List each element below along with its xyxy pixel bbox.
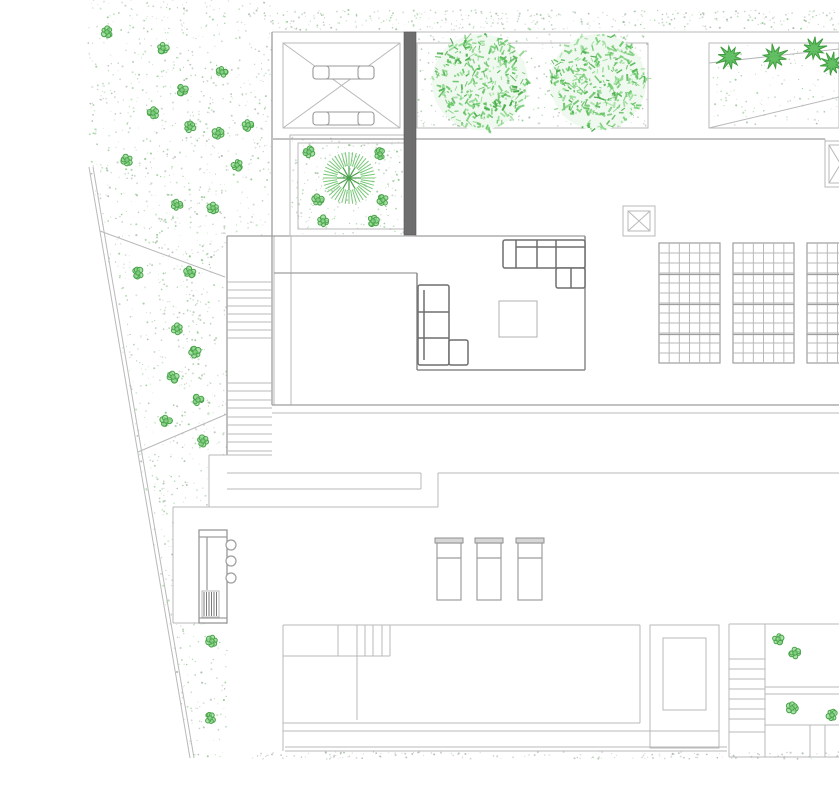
car-cap-tl <box>313 66 329 79</box>
skylight-box <box>825 141 839 187</box>
bush <box>375 148 385 160</box>
bar-stool-3 <box>226 573 236 583</box>
car-cap-tr <box>358 66 374 79</box>
bush <box>318 215 329 227</box>
palm-tree <box>323 152 375 204</box>
bush <box>160 415 172 426</box>
spa-inner <box>663 638 706 710</box>
architectural-site-plan <box>0 0 839 800</box>
bush <box>242 120 254 132</box>
bush <box>193 394 204 405</box>
bush <box>206 635 218 647</box>
stipple-ground-dotted-line <box>252 751 839 760</box>
patio-stair <box>729 659 765 732</box>
bush <box>368 215 379 226</box>
boundary-line-2 <box>93 167 194 758</box>
bush <box>212 127 224 139</box>
bush <box>184 266 196 278</box>
solar-panel-2 <box>733 243 794 363</box>
bar-stool-1 <box>226 540 236 550</box>
bush <box>773 634 784 645</box>
fan-line-2 <box>138 414 227 452</box>
bush <box>189 346 201 358</box>
shrub <box>763 44 788 69</box>
bush <box>198 435 209 447</box>
bush <box>377 195 388 206</box>
coffee-table <box>499 301 537 337</box>
bush <box>177 84 188 96</box>
shrub <box>803 37 827 60</box>
sofa-left-main <box>418 285 449 365</box>
sun-lounger-1 <box>435 538 463 600</box>
stipple-left-garden <box>87 0 272 757</box>
main-stair-upper-flight <box>227 282 272 338</box>
sun-lounger-2 <box>475 538 503 600</box>
bush <box>133 267 143 279</box>
ramp-diagonal-2 <box>709 97 839 128</box>
bush <box>231 160 242 172</box>
car-cap-br <box>358 112 374 125</box>
solar-panel-1 <box>659 243 720 363</box>
bush <box>171 199 182 210</box>
bush <box>121 154 132 166</box>
bar-stool-2 <box>226 556 236 566</box>
bush <box>786 702 798 714</box>
bush <box>147 107 158 119</box>
car-cap-bl <box>313 112 329 125</box>
bush <box>185 121 196 133</box>
sofa-left-ext <box>449 340 468 365</box>
solar-panel-3 <box>807 243 839 363</box>
bush <box>303 146 315 158</box>
bush <box>206 712 216 723</box>
bush <box>171 323 182 335</box>
site-plan-svg <box>0 0 839 800</box>
bush <box>101 26 112 38</box>
bush <box>216 67 228 78</box>
vent-box <box>623 206 655 236</box>
spa-outer <box>650 625 719 748</box>
main-stair-lower-flight <box>227 383 272 451</box>
tree-1 <box>432 33 531 134</box>
dark-wall <box>404 32 416 235</box>
shrub <box>716 46 741 69</box>
bush <box>207 202 219 214</box>
stipple-top-band <box>272 9 839 31</box>
boundary-line-1 <box>89 167 190 758</box>
bush <box>158 42 170 53</box>
bush <box>167 371 179 383</box>
bar-counter <box>199 530 227 623</box>
bush <box>826 709 837 720</box>
bush <box>789 647 801 659</box>
sun-lounger-3 <box>516 538 544 600</box>
